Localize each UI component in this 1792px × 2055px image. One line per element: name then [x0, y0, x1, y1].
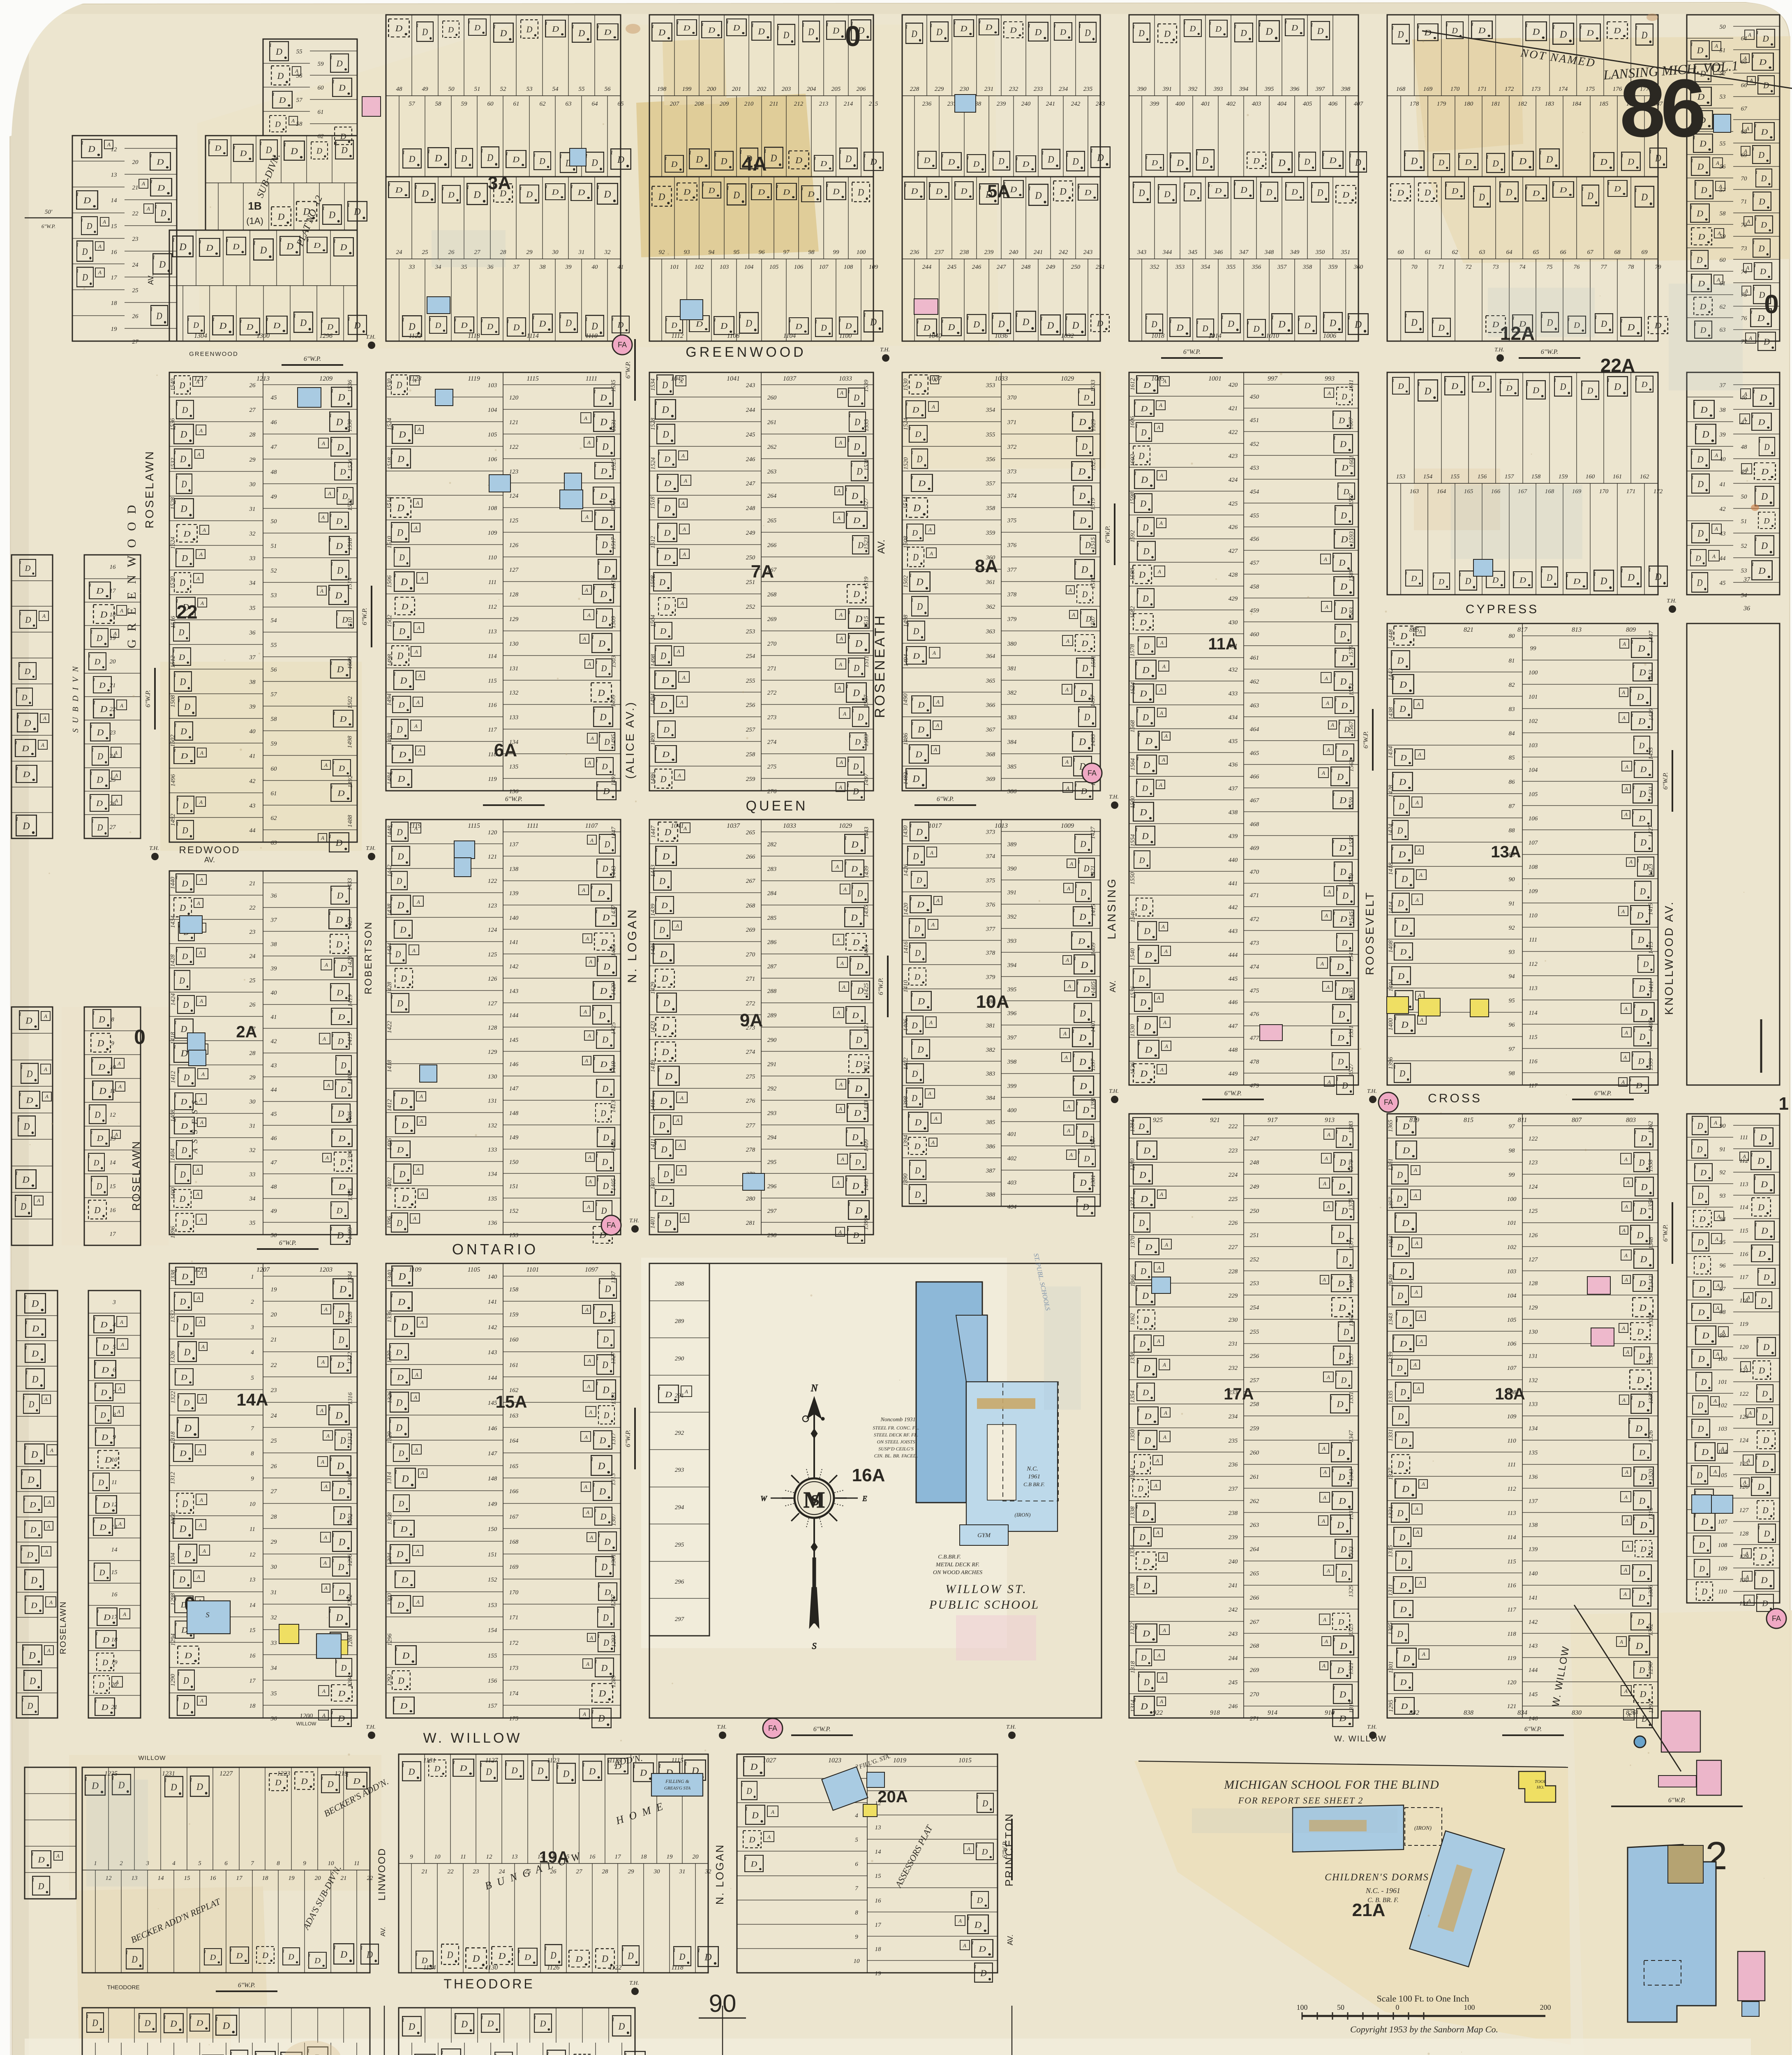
svg-text:55: 55 — [1720, 141, 1726, 147]
svg-text:803: 803 — [1626, 1117, 1636, 1124]
svg-text:A: A — [323, 1560, 327, 1566]
svg-text:A: A — [585, 1307, 589, 1313]
svg-text:122: 122 — [1529, 1136, 1538, 1142]
svg-text:10: 10 — [111, 1457, 118, 1463]
svg-text:A: A — [320, 588, 323, 594]
svg-text:383: 383 — [1007, 714, 1017, 721]
svg-text:807: 807 — [1572, 1117, 1582, 1124]
svg-text:A: A — [1624, 1688, 1628, 1694]
svg-text:51: 51 — [271, 543, 277, 550]
svg-text:42: 42 — [249, 778, 256, 785]
svg-text:241: 241 — [1046, 101, 1055, 107]
svg-text:253: 253 — [1250, 1280, 1259, 1287]
svg-text:925: 925 — [1153, 1117, 1163, 1124]
svg-text:268: 268 — [1250, 1643, 1259, 1649]
svg-text:247: 247 — [997, 264, 1007, 270]
svg-text:242: 242 — [1229, 1607, 1238, 1613]
svg-text:1340: 1340 — [386, 1270, 393, 1282]
svg-text:A: A — [1748, 1410, 1752, 1416]
svg-text:AV.: AV. — [147, 274, 155, 285]
svg-text:137: 137 — [509, 841, 519, 848]
svg-text:0: 0 — [1396, 2003, 1399, 2011]
svg-text:356: 356 — [986, 456, 995, 463]
svg-text:1399: 1399 — [863, 1217, 870, 1230]
svg-text:A: A — [120, 607, 123, 614]
svg-text:1: 1 — [1779, 1094, 1789, 1114]
svg-text:5A: 5A — [987, 181, 1010, 201]
svg-text:A: A — [928, 526, 932, 533]
svg-text:103: 103 — [1718, 1426, 1727, 1432]
svg-text:39: 39 — [249, 704, 256, 710]
svg-text:45: 45 — [1720, 580, 1726, 586]
svg-text:1540: 1540 — [1129, 948, 1136, 961]
svg-text:A: A — [47, 1647, 51, 1653]
svg-text:1328: 1328 — [347, 1312, 353, 1324]
svg-text:183: 183 — [1545, 101, 1554, 107]
svg-text:A: A — [1069, 861, 1073, 867]
svg-text:394: 394 — [1007, 962, 1017, 969]
svg-text:1419: 1419 — [347, 994, 353, 1007]
svg-text:280: 280 — [746, 1196, 755, 1202]
svg-text:353: 353 — [1175, 264, 1185, 270]
svg-text:A: A — [1323, 1469, 1327, 1475]
svg-text:A: A — [1619, 1639, 1623, 1645]
svg-text:1438: 1438 — [386, 903, 393, 916]
svg-text:2A: 2A — [236, 1023, 257, 1041]
svg-text:208: 208 — [695, 101, 704, 107]
svg-text:70: 70 — [1411, 264, 1418, 270]
svg-text:242: 242 — [1059, 249, 1068, 256]
svg-text:1501: 1501 — [1090, 656, 1097, 668]
svg-text:1514: 1514 — [347, 577, 353, 590]
svg-text:A: A — [1327, 1131, 1330, 1138]
svg-text:58: 58 — [435, 101, 442, 107]
svg-text:6"W.P.: 6"W.P. — [1662, 772, 1669, 790]
svg-text:357: 357 — [986, 480, 996, 487]
svg-text:997: 997 — [1268, 375, 1278, 382]
svg-text:A: A — [1712, 553, 1716, 559]
svg-text:33: 33 — [249, 1171, 256, 1178]
svg-text:158: 158 — [509, 1286, 519, 1293]
svg-text:1502: 1502 — [170, 734, 176, 747]
svg-text:139: 139 — [1529, 1546, 1538, 1553]
svg-text:231: 231 — [984, 86, 994, 92]
svg-text:477: 477 — [1250, 1035, 1260, 1041]
svg-text:274: 274 — [767, 739, 777, 746]
svg-text:153: 153 — [509, 1232, 519, 1239]
svg-text:1123: 1123 — [547, 1757, 560, 1764]
svg-text:65: 65 — [618, 101, 624, 107]
svg-text:A: A — [1159, 472, 1163, 478]
svg-text:359: 359 — [986, 530, 995, 536]
svg-text:61: 61 — [1425, 249, 1431, 256]
svg-text:94: 94 — [1509, 973, 1515, 980]
svg-text:123: 123 — [488, 903, 497, 909]
svg-text:1406: 1406 — [903, 1018, 909, 1031]
svg-text:A: A — [587, 1358, 591, 1364]
svg-text:252: 252 — [746, 604, 755, 610]
svg-text:1292: 1292 — [1648, 1701, 1654, 1713]
svg-text:A: A — [199, 1318, 202, 1325]
svg-text:1326: 1326 — [170, 1351, 176, 1363]
svg-text:171: 171 — [1478, 86, 1487, 92]
svg-text:31: 31 — [249, 1123, 256, 1129]
svg-text:10: 10 — [249, 1501, 256, 1508]
svg-text:1390: 1390 — [903, 1173, 909, 1186]
svg-text:439: 439 — [1229, 833, 1238, 840]
svg-text:240: 240 — [1021, 101, 1031, 107]
svg-text:A: A — [1622, 715, 1626, 721]
svg-text:159: 159 — [1559, 473, 1568, 480]
svg-text:463: 463 — [1250, 702, 1259, 709]
svg-text:243: 243 — [1229, 1631, 1238, 1637]
svg-text:1314: 1314 — [1129, 1699, 1136, 1712]
svg-text:A: A — [1621, 1079, 1625, 1085]
svg-text:157: 157 — [1505, 473, 1515, 480]
svg-text:5: 5 — [251, 1375, 254, 1381]
svg-text:G R E E N W O O D: G R E E N W O O D — [125, 503, 139, 648]
svg-text:259: 259 — [1250, 1425, 1259, 1432]
svg-text:A: A — [835, 864, 839, 870]
svg-text:1418: 1418 — [170, 1032, 176, 1045]
svg-text:T.H.: T.H. — [629, 1980, 639, 1986]
svg-text:A: A — [1067, 1104, 1070, 1110]
svg-text:A: A — [1068, 587, 1072, 593]
svg-text:A: A — [199, 1522, 202, 1528]
svg-text:AV.: AV. — [380, 1927, 387, 1936]
svg-text:1391: 1391 — [1090, 1097, 1097, 1110]
svg-text:1484: 1484 — [386, 772, 393, 785]
svg-text:1122: 1122 — [409, 332, 422, 339]
svg-text:A: A — [838, 784, 842, 790]
svg-text:5: 5 — [855, 1837, 858, 1843]
svg-text:152: 152 — [509, 1208, 519, 1215]
svg-text:1443: 1443 — [650, 865, 656, 877]
svg-text:1347: 1347 — [1348, 1429, 1355, 1443]
svg-text:A: A — [1419, 1338, 1423, 1344]
svg-text:A: A — [841, 1156, 844, 1162]
svg-text:A: A — [837, 515, 841, 521]
svg-text:27: 27 — [271, 1488, 278, 1495]
svg-text:266: 266 — [767, 542, 777, 549]
svg-text:11: 11 — [460, 1854, 466, 1860]
svg-text:A: A — [49, 1599, 53, 1605]
svg-text:105: 105 — [1507, 1317, 1517, 1323]
svg-text:1494: 1494 — [650, 693, 656, 706]
svg-text:171: 171 — [509, 1614, 519, 1621]
svg-text:260: 260 — [1250, 1450, 1259, 1456]
svg-text:47: 47 — [271, 444, 278, 450]
svg-text:1518: 1518 — [386, 457, 393, 470]
svg-text:263: 263 — [1250, 1522, 1259, 1529]
svg-text:23: 23 — [249, 929, 256, 935]
svg-text:383: 383 — [986, 1071, 995, 1077]
svg-text:A: A — [837, 685, 841, 691]
svg-text:1023: 1023 — [828, 1757, 841, 1764]
svg-text:343: 343 — [1137, 249, 1147, 256]
svg-text:A: A — [196, 900, 200, 906]
svg-text:387: 387 — [986, 1168, 996, 1174]
svg-text:1296: 1296 — [1648, 1662, 1654, 1675]
svg-text:1431: 1431 — [1648, 786, 1654, 799]
svg-text:1409: 1409 — [1090, 942, 1097, 955]
svg-text:1037: 1037 — [928, 375, 942, 382]
svg-text:A: A — [199, 998, 203, 1004]
svg-text:21: 21 — [111, 1704, 118, 1711]
svg-text:296: 296 — [675, 1579, 684, 1585]
svg-text:A: A — [678, 1142, 682, 1148]
svg-text:T.H.: T.H. — [880, 347, 890, 353]
svg-text:16A: 16A — [852, 1465, 885, 1485]
svg-text:102: 102 — [1507, 1244, 1517, 1251]
svg-text:A: A — [1321, 770, 1325, 776]
svg-text:A: A — [1622, 1397, 1626, 1403]
svg-text:1032: 1032 — [1061, 332, 1074, 339]
svg-text:6"W.P.: 6"W.P. — [1002, 1841, 1009, 1858]
svg-text:1036: 1036 — [995, 332, 1008, 339]
svg-text:1292: 1292 — [386, 1674, 393, 1686]
svg-text:276: 276 — [767, 788, 777, 795]
svg-text:23: 23 — [132, 236, 139, 242]
svg-text:59: 59 — [461, 101, 468, 107]
svg-text:98: 98 — [808, 249, 815, 256]
svg-text:A: A — [199, 1097, 203, 1103]
svg-text:101: 101 — [670, 264, 679, 270]
svg-text:143: 143 — [1529, 1643, 1538, 1649]
svg-text:1602: 1602 — [1129, 454, 1136, 466]
svg-text:A: A — [589, 1409, 592, 1415]
svg-text:136: 136 — [488, 1220, 497, 1226]
svg-text:1403: 1403 — [863, 1178, 870, 1191]
svg-text:A: A — [967, 1846, 970, 1852]
svg-text:344: 344 — [1162, 249, 1172, 256]
svg-text:1506: 1506 — [386, 575, 393, 588]
svg-text:1411: 1411 — [1648, 981, 1654, 993]
svg-text:A: A — [1157, 995, 1160, 1001]
svg-text:1335: 1335 — [1388, 1390, 1394, 1403]
svg-text:65: 65 — [1533, 249, 1540, 256]
svg-text:1425: 1425 — [863, 983, 870, 995]
svg-text:15: 15 — [111, 223, 118, 230]
svg-text:A: A — [321, 1359, 325, 1365]
svg-text:A: A — [1065, 957, 1069, 963]
svg-text:103: 103 — [1529, 742, 1538, 749]
svg-text:A: A — [838, 661, 842, 667]
svg-text:A: A — [1418, 751, 1421, 757]
svg-text:1961: 1961 — [1028, 1473, 1040, 1480]
svg-text:A: A — [420, 1319, 424, 1325]
svg-text:1400: 1400 — [1388, 1018, 1394, 1031]
svg-text:397: 397 — [1007, 1034, 1017, 1041]
svg-text:PUBLIC SCHOOL: PUBLIC SCHOOL — [929, 1598, 1039, 1612]
svg-text:104: 104 — [1529, 767, 1538, 774]
svg-text:A: A — [412, 947, 416, 954]
svg-text:229: 229 — [935, 86, 944, 92]
svg-text:A: A — [325, 1154, 329, 1161]
svg-text:14: 14 — [111, 1547, 118, 1553]
svg-text:A: A — [958, 1918, 962, 1924]
svg-text:A: A — [1164, 948, 1168, 954]
svg-text:1361: 1361 — [1388, 1158, 1394, 1171]
svg-text:1535: 1535 — [610, 379, 617, 392]
svg-text:248: 248 — [1021, 264, 1031, 270]
svg-text:22: 22 — [448, 1868, 454, 1875]
svg-text:129: 129 — [1529, 1305, 1538, 1311]
svg-text:110: 110 — [1507, 1438, 1516, 1444]
svg-text:993: 993 — [1325, 375, 1335, 382]
svg-text:A: A — [1624, 1006, 1628, 1012]
svg-text:1317: 1317 — [610, 1432, 617, 1445]
svg-text:1607: 1607 — [1348, 417, 1355, 430]
svg-text:1517: 1517 — [610, 537, 617, 550]
svg-text:270: 270 — [767, 641, 777, 647]
svg-text:A: A — [838, 1229, 842, 1235]
svg-text:156: 156 — [1478, 473, 1487, 480]
svg-text:A: A — [839, 1081, 843, 1088]
svg-text:156: 156 — [488, 1678, 497, 1684]
svg-text:178: 178 — [1410, 101, 1419, 107]
svg-text:49: 49 — [271, 494, 277, 500]
svg-text:1583: 1583 — [1348, 607, 1355, 620]
svg-text:385: 385 — [986, 1119, 995, 1126]
svg-text:41: 41 — [271, 1014, 277, 1021]
svg-text:172: 172 — [509, 1640, 519, 1646]
svg-text:13: 13 — [111, 172, 117, 178]
svg-text:1404: 1404 — [1388, 979, 1394, 992]
svg-text:225: 225 — [1229, 1196, 1238, 1203]
svg-text:441: 441 — [1229, 880, 1238, 887]
svg-text:94: 94 — [1720, 1216, 1726, 1223]
svg-text:A: A — [196, 1574, 200, 1580]
svg-text:14: 14 — [249, 1602, 256, 1609]
svg-text:A: A — [1713, 1469, 1717, 1475]
svg-text:A: A — [586, 1661, 589, 1667]
svg-text:1326: 1326 — [1648, 1430, 1654, 1443]
svg-text:16: 16 — [249, 1653, 256, 1659]
svg-text:A: A — [324, 962, 328, 968]
svg-text:A: A — [837, 487, 841, 494]
svg-text:1211: 1211 — [194, 1266, 207, 1273]
svg-text:258: 258 — [746, 751, 755, 758]
svg-text:1574: 1574 — [1129, 682, 1136, 695]
svg-text:1006: 1006 — [1323, 332, 1336, 339]
svg-text:58: 58 — [296, 121, 303, 127]
svg-text:377: 377 — [986, 926, 996, 933]
svg-text:116: 116 — [488, 702, 497, 709]
svg-text:246: 246 — [972, 264, 981, 270]
svg-text:127: 127 — [509, 567, 519, 573]
svg-text:ON WOOD ARCHES: ON WOOD ARCHES — [933, 1570, 982, 1576]
svg-text:1437: 1437 — [610, 904, 617, 917]
svg-text:CROSS: CROSS — [1428, 1092, 1482, 1105]
svg-text:120: 120 — [509, 395, 519, 401]
svg-text:349: 349 — [1290, 249, 1300, 256]
svg-text:METAL DECK RF.: METAL DECK RF. — [935, 1562, 979, 1568]
svg-text:1322: 1322 — [1129, 1622, 1136, 1635]
svg-text:6"W.P.: 6"W.P. — [304, 356, 321, 363]
svg-text:1532: 1532 — [170, 457, 176, 470]
svg-text:125: 125 — [488, 951, 497, 958]
svg-text:1524: 1524 — [903, 418, 909, 430]
svg-text:99: 99 — [833, 249, 840, 256]
svg-text:1B: 1B — [248, 200, 261, 212]
svg-text:393: 393 — [1213, 86, 1223, 92]
svg-text:124: 124 — [509, 493, 519, 499]
svg-text:253: 253 — [746, 628, 755, 635]
svg-text:123: 123 — [1529, 1159, 1538, 1166]
svg-text:211: 211 — [769, 101, 778, 107]
svg-text:36: 36 — [1743, 605, 1750, 612]
svg-text:381: 381 — [986, 1023, 995, 1029]
svg-text:A: A — [420, 1191, 424, 1197]
svg-text:55: 55 — [579, 86, 585, 92]
svg-text:1416: 1416 — [903, 941, 909, 954]
svg-text:255: 255 — [746, 678, 755, 684]
svg-text:381: 381 — [1007, 665, 1017, 672]
svg-text:430: 430 — [1229, 619, 1238, 626]
svg-text:264: 264 — [1250, 1546, 1259, 1553]
svg-text:436: 436 — [1229, 762, 1238, 768]
svg-text:245: 245 — [1229, 1679, 1238, 1686]
svg-text:A: A — [839, 759, 843, 765]
svg-text:A: A — [583, 1009, 587, 1015]
svg-text:6"W.P.: 6"W.P. — [878, 978, 884, 995]
svg-text:A: A — [1413, 1362, 1417, 1368]
svg-text:142: 142 — [1529, 1619, 1538, 1626]
svg-text:129: 129 — [509, 616, 519, 623]
svg-text:A: A — [582, 1711, 586, 1717]
svg-text:T.H.: T.H. — [1006, 1724, 1016, 1730]
svg-text:A: A — [47, 1499, 51, 1505]
svg-text:A: A — [200, 1697, 203, 1704]
svg-text:213: 213 — [819, 101, 829, 107]
svg-text:97: 97 — [783, 249, 790, 256]
svg-text:GREAS'G STA: GREAS'G STA — [664, 1786, 690, 1791]
svg-text:1514: 1514 — [903, 496, 909, 509]
svg-text:149: 149 — [488, 1501, 497, 1508]
svg-text:297: 297 — [767, 1208, 777, 1215]
svg-text:1009: 1009 — [1061, 822, 1074, 829]
svg-text:CYPRESS: CYPRESS — [1466, 603, 1539, 616]
svg-text:224: 224 — [1229, 1172, 1238, 1178]
svg-text:A: A — [122, 1611, 126, 1617]
svg-text:A: A — [1164, 1043, 1168, 1049]
svg-text:421: 421 — [1229, 405, 1238, 412]
svg-text:378: 378 — [1007, 591, 1017, 598]
svg-text:A: A — [676, 1117, 679, 1123]
svg-text:96: 96 — [1509, 1022, 1515, 1028]
svg-text:98: 98 — [1509, 1148, 1515, 1154]
svg-text:140: 140 — [488, 1274, 497, 1280]
svg-text:1524: 1524 — [650, 457, 656, 470]
svg-text:462: 462 — [1250, 679, 1259, 685]
svg-text:125: 125 — [509, 517, 519, 524]
svg-text:A: A — [1324, 675, 1328, 681]
svg-text:4A: 4A — [741, 153, 767, 175]
svg-text:14A: 14A — [236, 1390, 268, 1409]
svg-text:69: 69 — [1741, 152, 1748, 159]
svg-text:1401: 1401 — [650, 1216, 656, 1228]
svg-text:A: A — [677, 772, 681, 778]
svg-text:A: A — [1415, 897, 1419, 903]
svg-text:76: 76 — [1574, 264, 1580, 270]
svg-text:392: 392 — [1007, 914, 1017, 920]
svg-text:268: 268 — [746, 903, 755, 909]
svg-text:24: 24 — [396, 249, 403, 256]
svg-text:1405: 1405 — [610, 1178, 617, 1191]
svg-text:1414: 1414 — [1388, 901, 1394, 914]
svg-text:1308: 1308 — [170, 1512, 176, 1525]
